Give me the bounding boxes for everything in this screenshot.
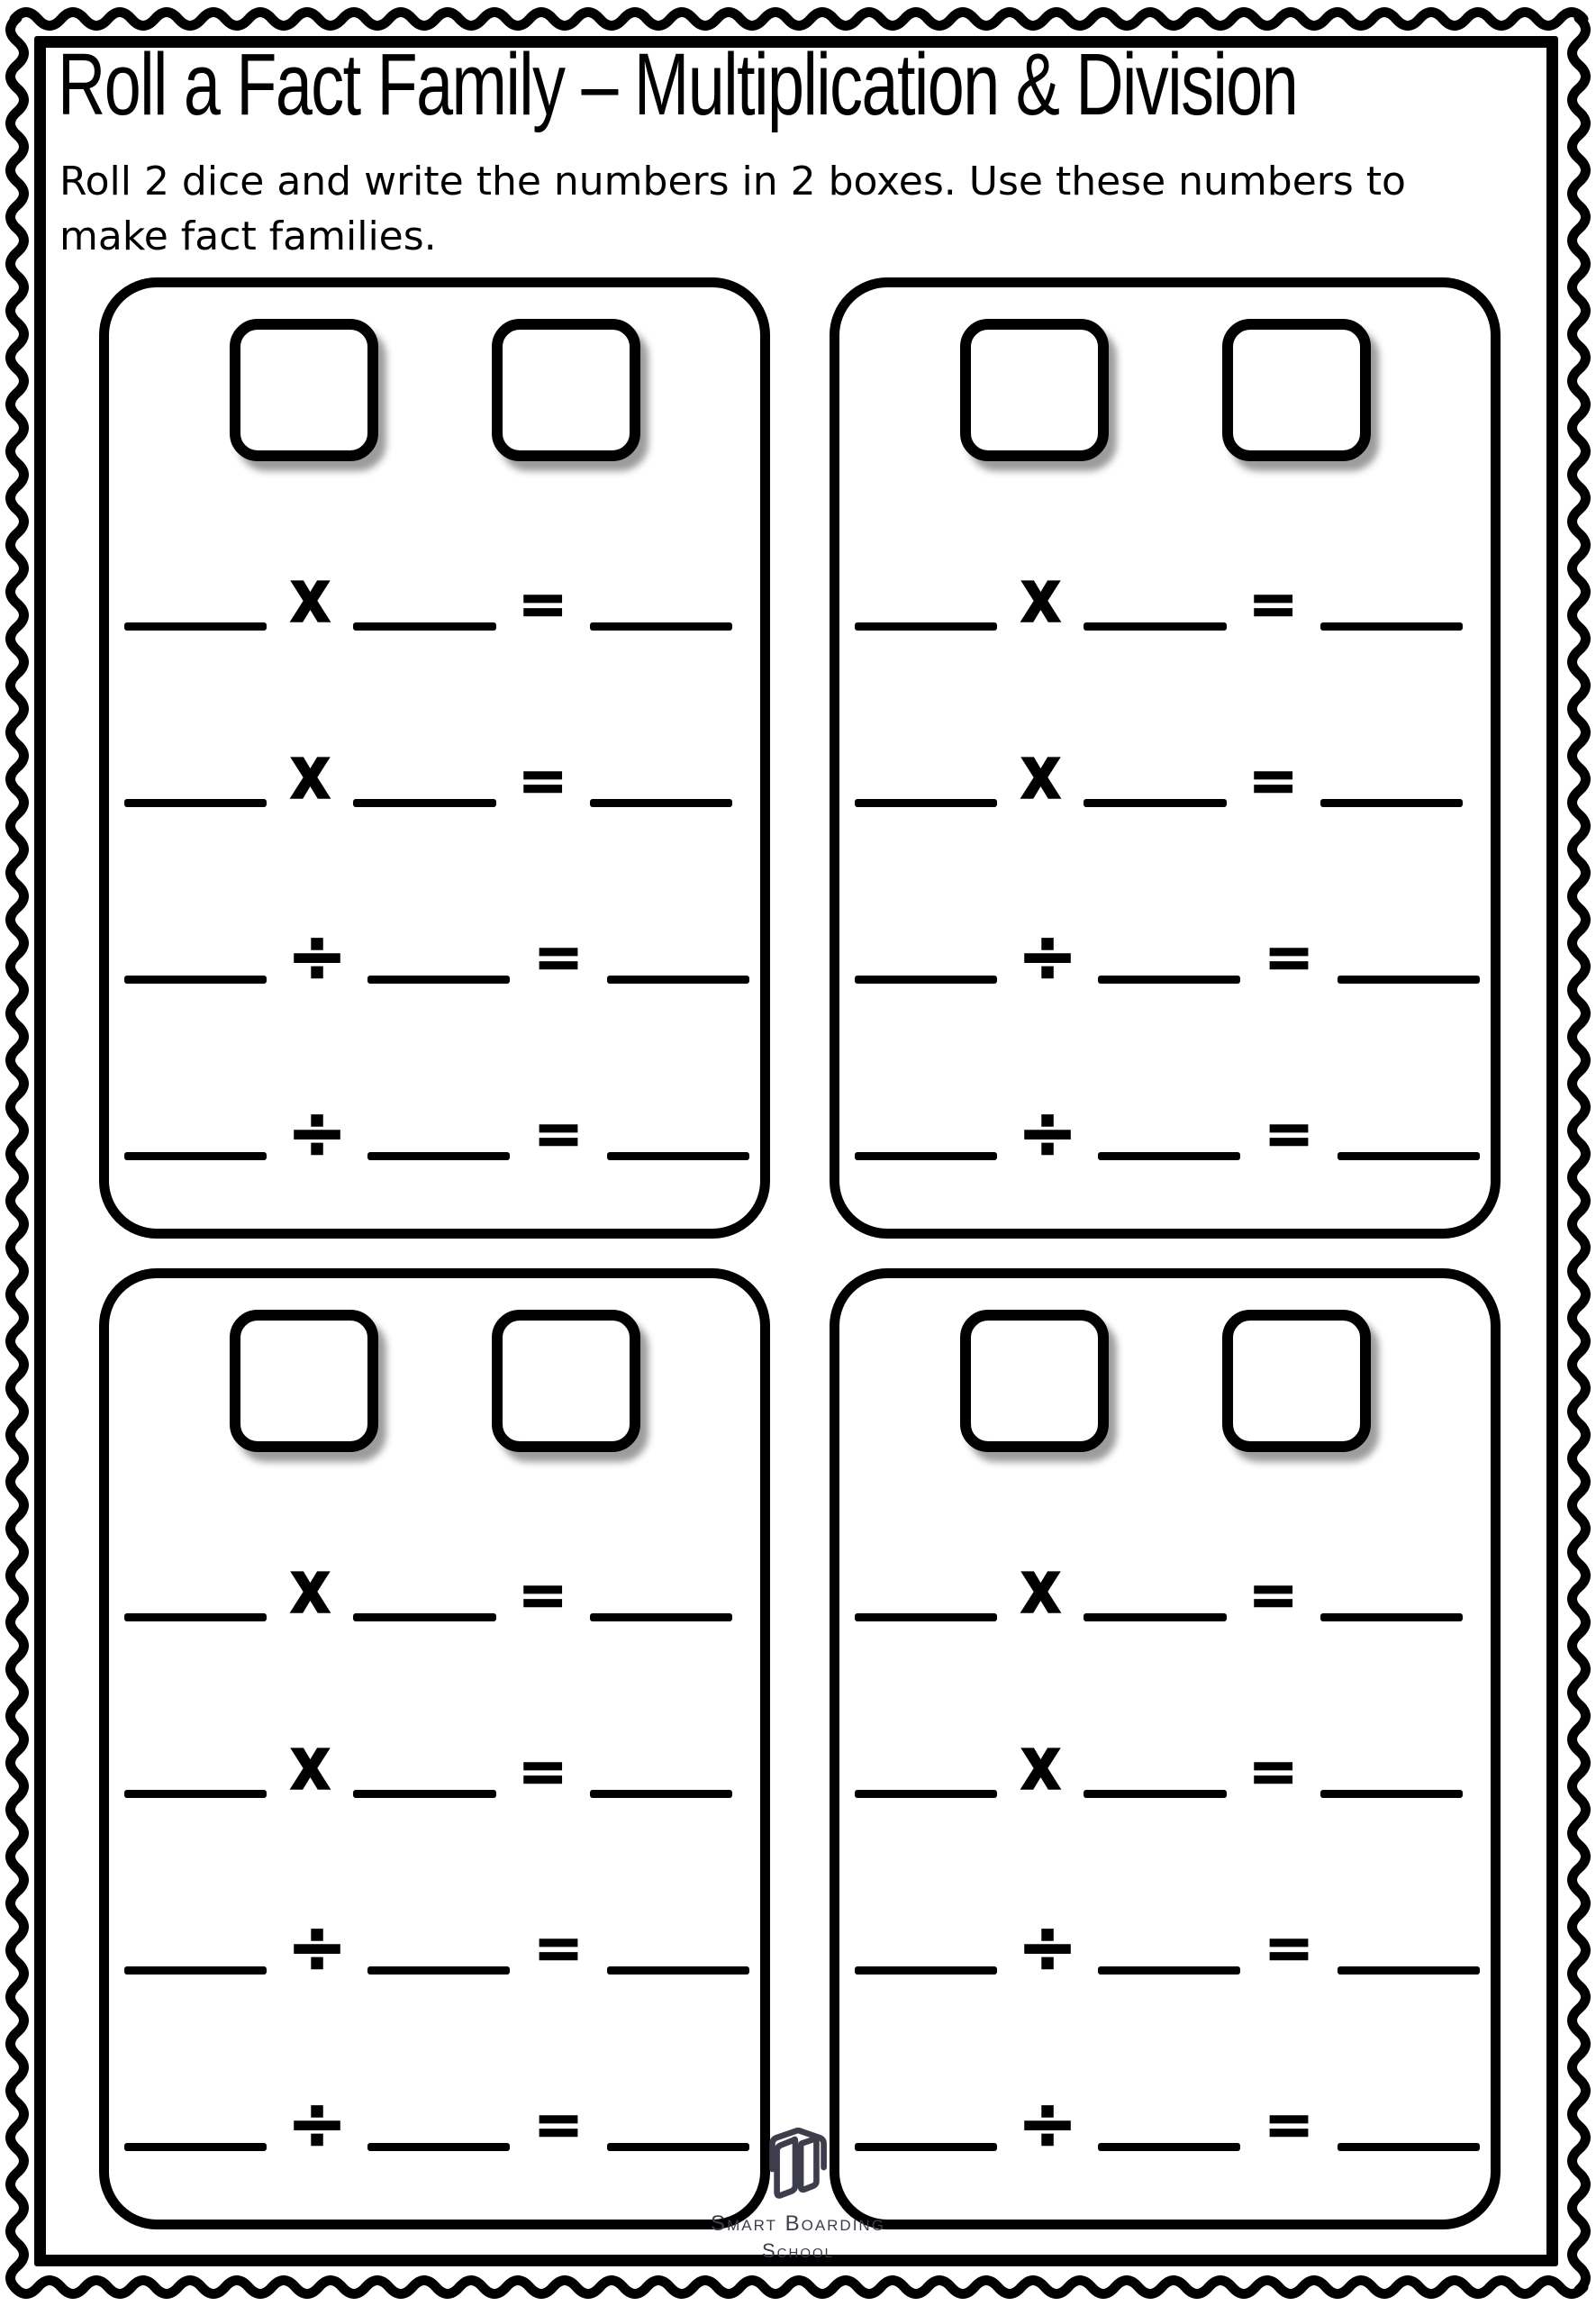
- answer-blank[interactable]: [1338, 1152, 1480, 1160]
- equals-symbol: =: [1227, 1562, 1320, 1621]
- equation-row: x =: [855, 522, 1463, 631]
- answer-blank[interactable]: [590, 1790, 732, 1798]
- multiply-symbol: x: [997, 733, 1084, 807]
- divide-symbol: ÷: [997, 912, 1098, 984]
- equation-row: ÷ =: [855, 1052, 1480, 1160]
- dice-number-box[interactable]: [230, 1310, 378, 1452]
- answer-blank[interactable]: [353, 622, 495, 631]
- answer-blank[interactable]: [1098, 1966, 1240, 1975]
- answer-blank[interactable]: [124, 1966, 267, 1975]
- equals-symbol: =: [510, 1915, 607, 1975]
- answer-blank[interactable]: [1084, 799, 1226, 807]
- multiply-symbol: x: [267, 1724, 353, 1798]
- smart-boarding-school-logo: Smart Boarding School: [711, 2126, 885, 2263]
- equals-symbol: =: [496, 1562, 590, 1621]
- answer-blank[interactable]: [1098, 2143, 1240, 2151]
- answer-blank[interactable]: [367, 1966, 510, 1975]
- equals-symbol: =: [496, 748, 590, 807]
- answer-blank[interactable]: [855, 1613, 997, 1621]
- fact-family-panel: x = x = ÷ = ÷ =: [99, 277, 770, 1239]
- answer-blank[interactable]: [607, 1966, 749, 1975]
- divide-symbol: ÷: [267, 1902, 367, 1975]
- equals-symbol: =: [1240, 924, 1338, 984]
- equation-row: ÷ =: [855, 876, 1480, 984]
- answer-blank[interactable]: [124, 1152, 267, 1160]
- dice-number-box[interactable]: [1222, 1310, 1371, 1452]
- equation-rows: x = x = ÷ = ÷ =: [109, 522, 760, 1160]
- answer-blank[interactable]: [353, 799, 495, 807]
- instructions-line-2: make fact families.: [59, 210, 1406, 265]
- equation-row: x =: [124, 699, 732, 807]
- fact-family-panel: x = x = ÷ = ÷ =: [99, 1268, 770, 2229]
- answer-blank[interactable]: [1338, 1966, 1480, 1975]
- answer-blank[interactable]: [124, 2143, 267, 2151]
- divide-symbol: ÷: [997, 1088, 1098, 1160]
- answer-blank[interactable]: [1320, 1790, 1463, 1798]
- answer-blank[interactable]: [855, 1966, 997, 1975]
- dice-number-box[interactable]: [492, 1310, 640, 1452]
- answer-blank[interactable]: [607, 1152, 749, 1160]
- answer-blank[interactable]: [124, 976, 267, 984]
- equation-row: ÷ =: [124, 876, 749, 984]
- dice-number-box[interactable]: [230, 319, 378, 461]
- instructions-line-1: Roll 2 dice and write the numbers in 2 b…: [59, 155, 1406, 210]
- dice-number-box[interactable]: [1222, 319, 1371, 461]
- answer-blank[interactable]: [1338, 976, 1480, 984]
- equation-row: x =: [855, 699, 1463, 807]
- equals-symbol: =: [510, 924, 607, 984]
- divide-symbol: ÷: [267, 2079, 367, 2151]
- answer-blank[interactable]: [607, 976, 749, 984]
- equation-row: ÷ =: [124, 2043, 749, 2151]
- equals-symbol: =: [1227, 748, 1320, 807]
- answer-blank[interactable]: [1320, 799, 1463, 807]
- answer-blank[interactable]: [1320, 622, 1463, 631]
- equation-row: ÷ =: [855, 2043, 1480, 2151]
- answer-blank[interactable]: [1098, 976, 1240, 984]
- fact-family-panel: x = x = ÷ = ÷ =: [830, 1268, 1501, 2229]
- worksheet-page: Roll a Fact Family – Multiplication & Di…: [0, 0, 1596, 2306]
- dice-box-row: [839, 319, 1491, 461]
- answer-blank[interactable]: [124, 622, 267, 631]
- equals-symbol: =: [496, 571, 590, 631]
- dice-number-box[interactable]: [960, 319, 1109, 461]
- answer-blank[interactable]: [124, 799, 267, 807]
- dice-box-row: [839, 1310, 1491, 1452]
- dice-box-row: [109, 319, 760, 461]
- multiply-symbol: x: [267, 733, 353, 807]
- fact-family-panel: x = x = ÷ = ÷ =: [830, 277, 1501, 1239]
- wavy-border-right: [1573, 18, 1586, 2290]
- answer-blank[interactable]: [1084, 1790, 1226, 1798]
- equals-symbol: =: [1240, 1915, 1338, 1975]
- dice-number-box[interactable]: [960, 1310, 1109, 1452]
- equals-symbol: =: [496, 1739, 590, 1798]
- answer-blank[interactable]: [124, 1613, 267, 1621]
- smart-boarding-school-logo-icon: [752, 2126, 844, 2209]
- answer-blank[interactable]: [855, 976, 997, 984]
- worksheet-instructions: Roll 2 dice and write the numbers in 2 b…: [59, 155, 1406, 264]
- equation-rows: x = x = ÷ = ÷ =: [839, 522, 1491, 1160]
- equals-symbol: =: [1227, 1739, 1320, 1798]
- equation-rows: x = x = ÷ = ÷ =: [839, 1513, 1491, 2151]
- answer-blank[interactable]: [353, 1790, 495, 1798]
- answer-blank[interactable]: [367, 2143, 510, 2151]
- equals-symbol: =: [510, 1101, 607, 1160]
- multiply-symbol: x: [267, 557, 353, 631]
- multiply-symbol: x: [267, 1548, 353, 1621]
- answer-blank[interactable]: [367, 1152, 510, 1160]
- dice-box-row: [109, 1310, 760, 1452]
- logo-text-line2: School: [711, 2239, 885, 2263]
- worksheet-title: Roll a Fact Family – Multiplication & Di…: [58, 38, 1297, 132]
- answer-blank[interactable]: [590, 622, 732, 631]
- answer-blank[interactable]: [855, 1152, 997, 1160]
- equals-symbol: =: [510, 2092, 607, 2151]
- answer-blank[interactable]: [367, 976, 510, 984]
- dice-number-box[interactable]: [492, 319, 640, 461]
- multiply-symbol: x: [997, 557, 1084, 631]
- answer-blank[interactable]: [1338, 2143, 1480, 2151]
- equation-row: x =: [124, 1513, 732, 1621]
- divide-symbol: ÷: [267, 1088, 367, 1160]
- equals-symbol: =: [1227, 571, 1320, 631]
- divide-symbol: ÷: [997, 1902, 1098, 1975]
- answer-blank[interactable]: [590, 1613, 732, 1621]
- multiply-symbol: x: [997, 1548, 1084, 1621]
- fact-family-panels: x = x = ÷ = ÷ = x = x =: [99, 277, 1501, 2156]
- answer-blank[interactable]: [1084, 622, 1226, 631]
- equation-row: ÷ =: [124, 1052, 749, 1160]
- answer-blank[interactable]: [353, 1613, 495, 1621]
- answer-blank[interactable]: [855, 622, 997, 631]
- equation-row: x =: [855, 1513, 1463, 1621]
- answer-blank[interactable]: [1084, 1613, 1226, 1621]
- equation-row: ÷ =: [124, 1866, 749, 1975]
- equation-row: x =: [124, 1690, 732, 1798]
- answer-blank[interactable]: [590, 799, 732, 807]
- answer-blank[interactable]: [124, 1790, 267, 1798]
- wavy-border-bottom: [14, 2281, 1583, 2294]
- divide-symbol: ÷: [267, 912, 367, 984]
- wavy-border-left: [11, 18, 24, 2290]
- equation-rows: x = x = ÷ = ÷ =: [109, 1513, 760, 2151]
- wavy-border-top: [14, 13, 1583, 26]
- logo-text-line1: Smart Boarding: [711, 2211, 885, 2237]
- answer-blank[interactable]: [855, 799, 997, 807]
- equation-row: x =: [124, 522, 732, 631]
- answer-blank[interactable]: [1098, 1152, 1240, 1160]
- equals-symbol: =: [1240, 1101, 1338, 1160]
- divide-symbol: ÷: [997, 2079, 1098, 2151]
- equals-symbol: =: [1240, 2092, 1338, 2151]
- answer-blank[interactable]: [1320, 1613, 1463, 1621]
- multiply-symbol: x: [997, 1724, 1084, 1798]
- equation-row: ÷ =: [855, 1866, 1480, 1975]
- equation-row: x =: [855, 1690, 1463, 1798]
- answer-blank[interactable]: [855, 1790, 997, 1798]
